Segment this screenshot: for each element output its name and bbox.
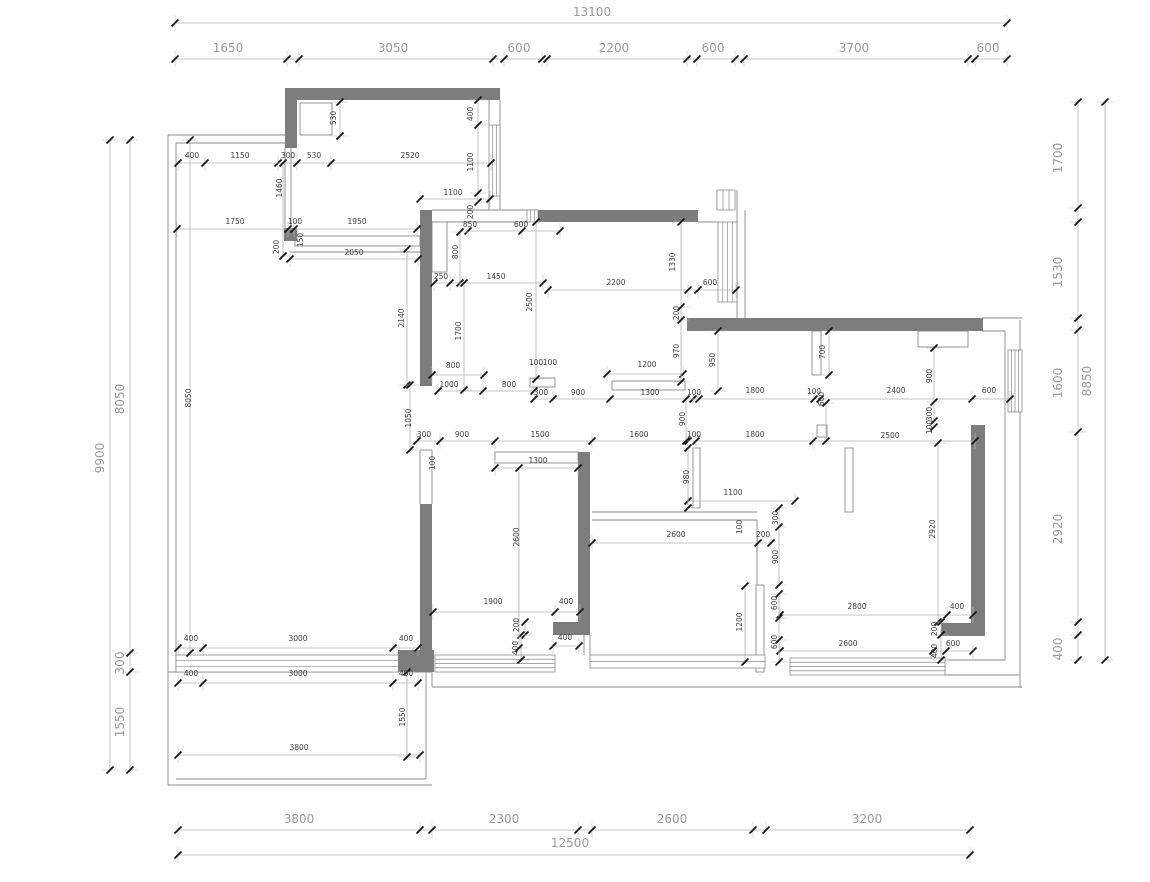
dimension-label: 1700 — [1051, 143, 1065, 174]
dimension-label: 600 — [982, 386, 997, 395]
dimension-label: 300 — [417, 430, 432, 439]
dimension-label: 900 — [925, 369, 934, 384]
dimension-label: 850 — [463, 220, 478, 229]
dimension-label: 1100 — [466, 152, 475, 171]
dimension-label: 1460 — [275, 178, 284, 197]
dimension-label: 12500 — [551, 836, 589, 850]
dimension-label: 600 — [703, 278, 718, 287]
dimension-label: 600 — [946, 639, 961, 648]
dimension-label: 100 — [428, 456, 437, 471]
dimension-label: 2200 — [606, 278, 625, 287]
dimension-label: 400 — [399, 634, 414, 643]
dimension-label: 1300 — [640, 388, 659, 397]
dimension-label: 2500 — [880, 431, 899, 440]
dimension-label: 530 — [307, 151, 322, 160]
dimension-label: 200 — [756, 530, 771, 539]
dimension-label: 600 — [770, 635, 779, 650]
dimension-label: 200 — [672, 306, 681, 321]
dimension-label: 1200 — [637, 360, 656, 369]
dimension-label: 600 — [702, 41, 725, 55]
dimension-label: 200 — [272, 240, 281, 255]
dimension-label: 13100 — [573, 5, 611, 19]
dimension-label: 1500 — [530, 430, 549, 439]
dimension-label: 600 — [770, 596, 779, 611]
dimension-label: 400 — [950, 602, 965, 611]
dimension-label: 100 — [735, 520, 744, 535]
dimension-label: 1100 — [443, 188, 462, 197]
dimension-label: 2300 — [489, 812, 520, 826]
dimension-label: 3800 — [289, 743, 308, 752]
dimension-label: 900 — [455, 430, 470, 439]
plan-lines-layer — [168, 100, 1022, 785]
thin-walls-layer — [295, 103, 968, 672]
floor-plan-svg: 1310016503050600220060037006009900805030… — [0, 0, 1150, 882]
dimension-label: 3200 — [852, 812, 883, 826]
dimension-label: 8050 — [113, 384, 127, 415]
dimension-label: 1550 — [113, 707, 127, 738]
dimension-label: 900 — [571, 388, 586, 397]
dimension-label: 300 — [925, 407, 934, 422]
dimension-label: 400 — [1051, 638, 1065, 661]
dimension-label: 1100 — [723, 488, 742, 497]
dimension-label: 100 — [687, 388, 702, 397]
dimension-label: 400 — [511, 641, 520, 656]
dimension-label: 200 — [930, 622, 939, 637]
dimension-lines-layer — [102, 15, 1113, 863]
dimension-label: 1530 — [1051, 257, 1065, 288]
dimension-label: 1150 — [230, 151, 249, 160]
dimension-labels-layer: 1310016503050600220060037006009900805030… — [93, 5, 1094, 850]
dimension-label: 800 — [502, 380, 517, 389]
dimension-label: 1800 — [745, 430, 764, 439]
dimension-label: 1650 — [213, 41, 244, 55]
dimension-label: 2600 — [838, 639, 857, 648]
dimension-label: 1050 — [404, 408, 413, 427]
dimension-label: 1550 — [398, 707, 407, 726]
dimension-label: 100 — [925, 420, 934, 435]
dimension-label: 100 — [687, 430, 702, 439]
dimension-label: 2800 — [847, 602, 866, 611]
dimension-label: 2200 — [599, 41, 630, 55]
dimension-label: 400 — [558, 633, 573, 642]
dimension-label: 400 — [559, 597, 574, 606]
dimension-label: 100 — [529, 358, 544, 367]
dimension-label: 2520 — [400, 151, 419, 160]
dimension-label: 1330 — [668, 252, 677, 271]
dimension-label: 400 — [399, 669, 414, 678]
dimension-label: 1450 — [486, 272, 505, 281]
dimension-label: 1800 — [745, 386, 764, 395]
dimension-label: 1200 — [735, 612, 744, 631]
dimension-label: 400 — [184, 634, 199, 643]
dimension-label: 600 — [817, 392, 826, 407]
dimension-label: 3050 — [378, 41, 409, 55]
dimension-label: 400 — [185, 151, 200, 160]
dimension-label: 2920 — [1051, 514, 1065, 545]
dimension-label: 150 — [296, 233, 305, 248]
dimension-label: 300 — [113, 652, 127, 675]
dimension-label: 900 — [771, 550, 780, 565]
dimension-label: 900 — [678, 412, 687, 427]
dimension-label: 3000 — [288, 634, 307, 643]
dimension-label: 250 — [434, 272, 449, 281]
dimension-label: 2140 — [397, 308, 406, 327]
floor-plan-page: 1310016503050600220060037006009900805030… — [0, 0, 1150, 882]
dimension-label: 1600 — [629, 430, 648, 439]
dimension-label: 200 — [512, 618, 521, 633]
dimension-label: 530 — [329, 111, 338, 126]
dimension-label: 1700 — [454, 321, 463, 340]
dimension-label: 2920 — [928, 519, 937, 538]
dimension-label: 100 — [288, 217, 303, 226]
dimension-label: 300 — [771, 511, 780, 526]
dimension-label: 2500 — [525, 292, 534, 311]
dimension-label: 980 — [682, 470, 691, 485]
walls-layer — [284, 88, 985, 672]
dimension-label: 600 — [977, 41, 1000, 55]
dimension-label: 9900 — [93, 443, 107, 474]
dimension-label: 1300 — [528, 456, 547, 465]
dimension-label: 600 — [508, 41, 531, 55]
dimension-label: 800 — [451, 245, 460, 260]
dimension-label: 950 — [708, 353, 717, 368]
dimension-label: 800 — [446, 361, 461, 370]
windows-layer — [176, 125, 1022, 675]
dimension-label: 700 — [818, 345, 827, 360]
dimension-label: 200 — [466, 205, 475, 220]
dimension-label: 3000 — [288, 669, 307, 678]
dimension-label: 400 — [466, 107, 475, 122]
dimension-label: 3700 — [839, 41, 870, 55]
dimension-label: 400 — [930, 644, 939, 659]
dimension-label: 2400 — [886, 386, 905, 395]
dimension-label: 2050 — [344, 248, 363, 257]
dimension-label: 2600 — [512, 527, 521, 546]
dimension-label: 100 — [543, 358, 558, 367]
dimension-label: 1950 — [347, 217, 366, 226]
dimension-label: 3800 — [284, 812, 315, 826]
dimension-label: 400 — [184, 669, 199, 678]
dimension-label: 1000 — [439, 380, 458, 389]
dimension-label: 8850 — [1080, 366, 1094, 397]
dimension-label: 1750 — [225, 217, 244, 226]
dimension-label: 2600 — [657, 812, 688, 826]
dimension-label: 300 — [281, 151, 296, 160]
dimension-label: 1600 — [1051, 368, 1065, 399]
dimension-label: 600 — [514, 220, 529, 229]
dimension-label: 1900 — [483, 597, 502, 606]
dimension-label: 300 — [534, 388, 549, 397]
dimension-label: 8050 — [184, 388, 193, 407]
dimension-label: 2600 — [666, 530, 685, 539]
dimension-label: 970 — [672, 344, 681, 359]
